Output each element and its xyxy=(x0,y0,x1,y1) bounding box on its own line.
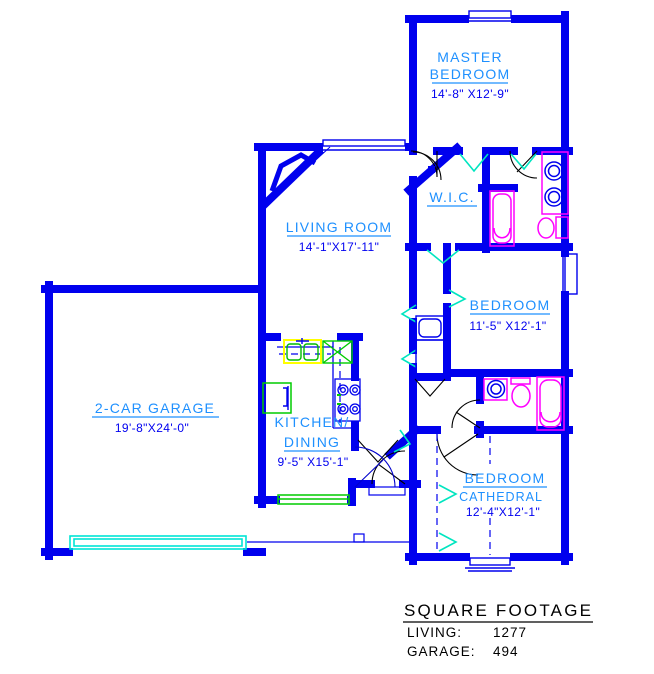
living-room-dims: 14'-1"X17'-11" xyxy=(299,240,380,254)
cathedral-closet-chevron-1 xyxy=(439,485,456,503)
living-room-label: LIVING ROOM xyxy=(286,219,393,235)
dashed-lines xyxy=(279,347,490,557)
garage-dims: 19'-8"X24'-0" xyxy=(115,421,189,435)
washer-tub xyxy=(419,319,441,337)
bedroom-middle-dims: 11'-5" X12'-1" xyxy=(469,319,546,333)
bedroom-cathedral-subtitle: CATHEDRAL xyxy=(459,490,543,504)
bedroom-cathedral-door xyxy=(437,434,478,475)
porch-post xyxy=(354,534,364,542)
kitchen-faucet xyxy=(296,338,309,344)
square-footage-title: SQUARE FOOTAGE xyxy=(404,601,593,620)
refrigerator-handle xyxy=(283,386,288,410)
bedroom-middle-door-chevron xyxy=(449,290,465,307)
master-bedroom-label-line2: BEDROOM xyxy=(430,66,511,82)
square-footage-table: SQUARE FOOTAGE LIVING: 1277 GARAGE: 494 xyxy=(403,601,593,659)
hall-bath-sink xyxy=(488,381,505,398)
master-bath xyxy=(490,152,568,246)
bedroom-cathedral-label: BEDROOM xyxy=(465,470,546,486)
hall-bath-toilet xyxy=(511,378,530,407)
hall-bath xyxy=(484,377,564,430)
room-labels: MASTER BEDROOM 14'-8" X12'-9" W.I.C. LIV… xyxy=(92,49,550,519)
fireplace xyxy=(262,147,330,209)
bedroom-middle-label: BEDROOM xyxy=(470,297,551,313)
garage-label: 2-CAR GARAGE xyxy=(95,400,215,416)
kitchen-fixtures xyxy=(263,338,360,421)
square-footage-row-living-label: LIVING: xyxy=(407,625,462,640)
bedroom-middle-window xyxy=(563,254,577,294)
kitchen-label-line2: DINING xyxy=(284,434,340,450)
square-footage-row-garage-value: 494 xyxy=(493,644,519,659)
wall-masterbath-partition xyxy=(482,151,514,249)
master-vanity-sinks xyxy=(545,162,563,206)
garage-door xyxy=(70,536,246,549)
bedroom-cathedral-dims: 12'-4"X12'-1" xyxy=(466,505,540,519)
hall-bath-door xyxy=(452,400,480,428)
square-footage-row-garage-label: GARAGE: xyxy=(407,644,476,659)
cathedral-closet-chevron-2 xyxy=(439,533,456,551)
square-footage-row-living-value: 1277 xyxy=(493,625,527,640)
entry-stoop xyxy=(369,487,405,495)
wic-label: W.I.C. xyxy=(429,189,474,205)
dishwasher xyxy=(323,341,352,363)
laundry-closet-doors xyxy=(415,379,445,396)
kitchen-label-line1: KITCHEN/ xyxy=(275,414,350,430)
master-tub xyxy=(490,191,514,246)
master-bedroom-dims: 14'-8" X12'-9" xyxy=(431,87,509,101)
laundry-closet xyxy=(416,316,444,374)
door-stop-block xyxy=(428,166,435,173)
dryer-space xyxy=(416,340,444,374)
floor-plan-page: MASTER BEDROOM 14'-8" X12'-9" W.I.C. LIV… xyxy=(0,0,654,674)
master-bedroom-label-line1: MASTER xyxy=(437,49,503,65)
master-bath-door xyxy=(510,151,537,178)
hall-bath-tub xyxy=(537,377,564,430)
front-door xyxy=(372,451,405,484)
kitchen-dims: 9'-5" X15'-1" xyxy=(277,455,348,469)
floor-plan-drawing: MASTER BEDROOM 14'-8" X12'-9" W.I.C. LIV… xyxy=(0,0,654,674)
kitchen-cabinet-dashed xyxy=(279,347,340,423)
